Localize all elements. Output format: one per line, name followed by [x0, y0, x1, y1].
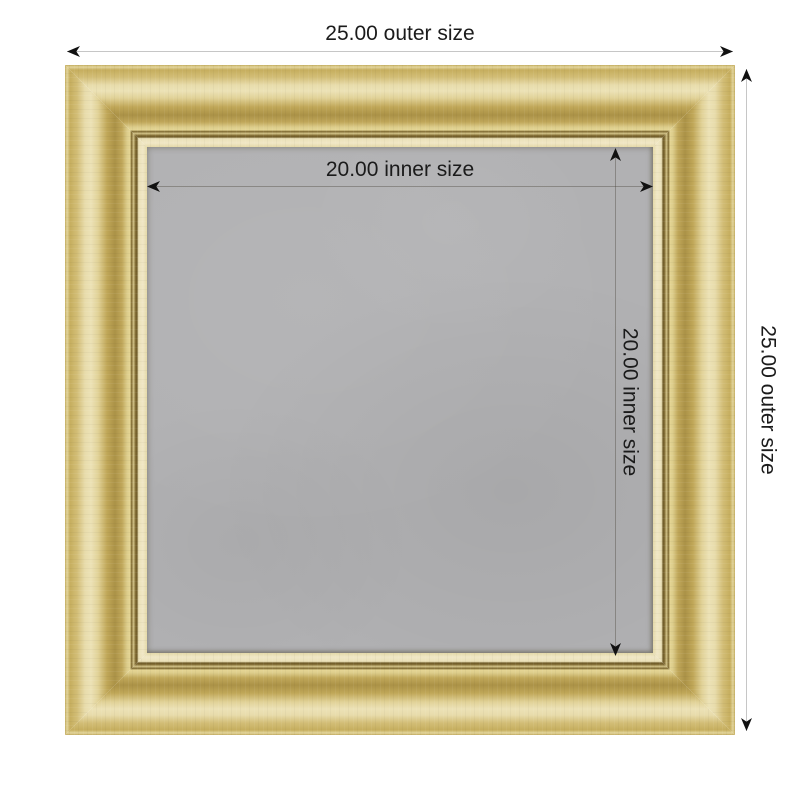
frame-rail-bottom [65, 653, 735, 735]
outer-height-label: 25.00 outer size [756, 325, 781, 474]
arrow-left-icon [67, 46, 80, 57]
frame-dimension-diagram: 25.00 outer size 25.00 outer size 20.00 … [0, 0, 800, 800]
picture-frame [65, 65, 735, 735]
outer-width-label: 25.00 outer size [325, 21, 474, 46]
arrow-down-icon [741, 718, 752, 731]
arrow-right-icon [720, 46, 733, 57]
outer-width-dimension-line [67, 51, 733, 52]
arrow-up-icon [741, 69, 752, 82]
frame-rail-top [65, 65, 735, 147]
outer-height-dimension-line [746, 69, 747, 731]
frame-rail-right [653, 65, 735, 735]
frame-rail-left [65, 65, 147, 735]
gray-board [147, 147, 653, 653]
